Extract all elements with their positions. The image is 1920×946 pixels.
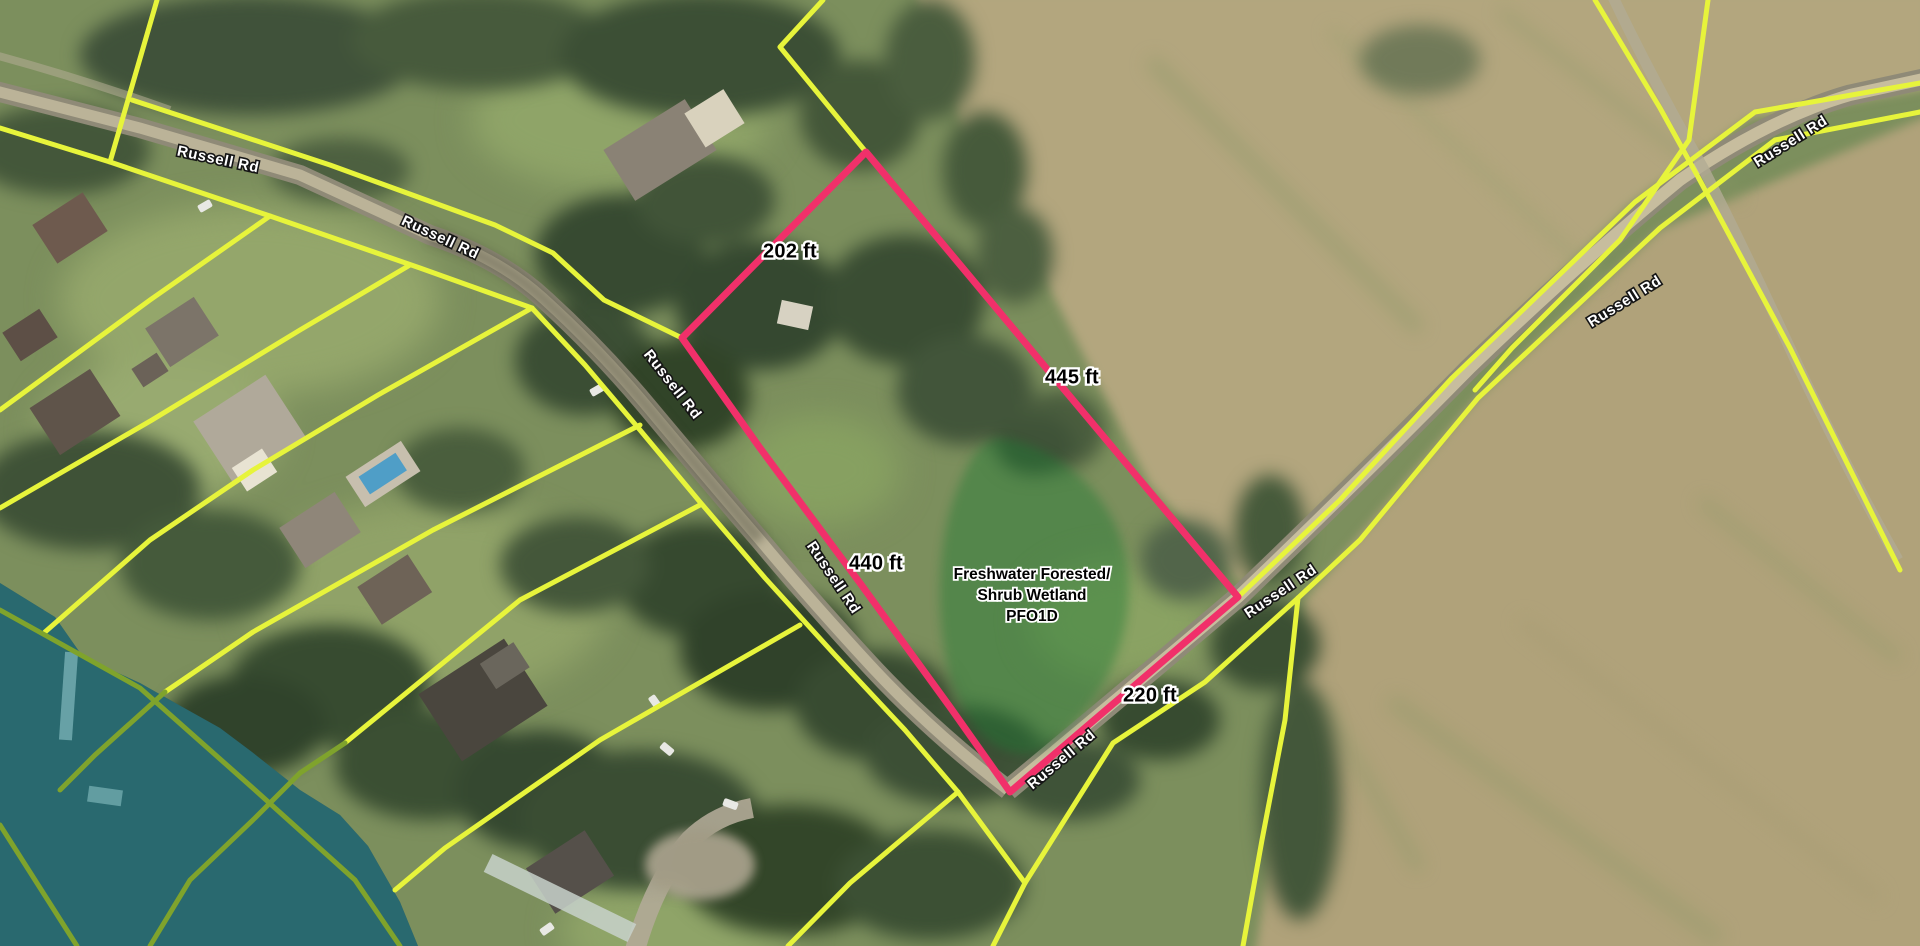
map-canvas: Russell Rd Russell Rd Russell Rd Russell… <box>0 0 1920 946</box>
dimension-label-445ft: 445 ft <box>1045 366 1099 388</box>
dimension-label-440ft: 440 ft <box>849 552 903 574</box>
aerial-parcel-map[interactable]: Russell Rd Russell Rd Russell Rd Russell… <box>0 0 1920 946</box>
dimension-label-220ft: 220 ft <box>1123 684 1177 706</box>
dimension-label-202ft: 202 ft <box>763 240 817 262</box>
wetland-label-line2: Shrub Wetland <box>977 587 1086 604</box>
wetland-label-line1: Freshwater Forested/ <box>954 566 1111 583</box>
wetland-label-line3: PFO1D <box>1006 608 1058 625</box>
